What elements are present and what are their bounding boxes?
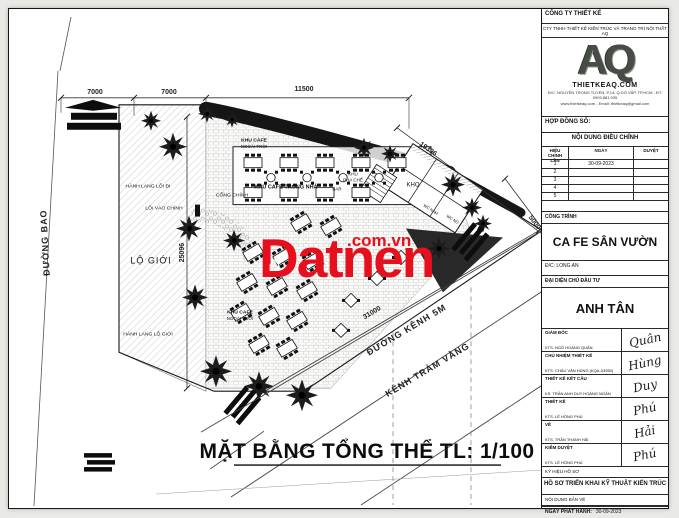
label-indoor-cafe: KHU CAFE TRONG NHÀ [254, 184, 317, 191]
marker-top-left [65, 100, 121, 130]
signer-name: KTS. NGÔ HOÀNG QUÂN [545, 345, 620, 350]
company-logo-box: AQ THIETKEAQ.COM Đ/C: NGUYỄN TRỌNG TUYỂN… [542, 38, 668, 117]
issue-date-row: NGÀY PHÁT HÀNH: 30-09-2023 [542, 507, 668, 518]
label-main-gate: CỔNG CHÍNH [216, 192, 249, 199]
dim-7000-left: 7000 [87, 89, 103, 96]
signer-name: KTS. LÊ HỒNG PHÚ [545, 460, 620, 465]
revision-header: NỘI DUNG ĐIỀU CHỈNH [542, 133, 668, 147]
dossier-label: KÝ HIỆU HỒ SƠ [542, 467, 668, 478]
dim-25096: 25096 [179, 243, 186, 263]
logo-website: THIETKEAQ.COM [542, 82, 668, 89]
signer-role: CHỦ NHIỆM THIẾT KẾ [545, 353, 620, 358]
site-plan-drawing: 7000 7000 11500 19396 5000 25096 31000 Đ… [9, 9, 541, 508]
owner-name: ANH TÂN [542, 288, 668, 329]
sheet-content-label: NỘI DUNG BẢN VẼ [542, 495, 668, 506]
revision-row: 4 [542, 184, 668, 192]
contract-number-row: HỢP ĐỒNG SỐ: [542, 117, 668, 133]
project-label: CÔNG TRÌNH [542, 212, 668, 224]
signer-row-drafter: VẼ KTS. TRẦN THANH HẢI Hải [542, 421, 668, 444]
signer-role: THIẾT KẾ KẾT CẤU [545, 376, 620, 381]
signer-role: GIÁM ĐỐC [545, 330, 620, 335]
label-setback: LỘ GIỚI [130, 254, 171, 265]
scanned-drawing-page: 7000 7000 11500 19396 5000 25096 31000 Đ… [0, 0, 679, 518]
rev-no: 5 [542, 192, 569, 201]
signer-role: THIẾT KẾ [545, 399, 620, 404]
logo-address-1: Đ/C: NGUYỄN TRỌNG TUYỂN, P.14, Q.GÒ VẤP,… [542, 89, 668, 100]
left-road-lines [34, 17, 71, 506]
label-outdoor-cafe-2b: NGOÀI TRỜI [227, 315, 254, 321]
dim-11500: 11500 [294, 86, 313, 93]
logo-address-2: www.thietkeaq.com - Email: thietkeaq@gma… [542, 100, 668, 106]
marker-bottom-left [84, 453, 115, 471]
canal-name: KÊNH TRÀM VÀNG [383, 340, 471, 399]
label-storage: KHO [407, 183, 420, 189]
issue-date-value: 30-09-2023 [596, 509, 622, 518]
signature: Phú [632, 400, 658, 419]
signature: Quân [628, 330, 663, 350]
label-bar-counter-1: KHU [348, 172, 357, 177]
drawing-sheet: 7000 7000 11500 19396 5000 25096 31000 Đ… [8, 8, 669, 509]
signer-name: KS. TRẦN ANH DUY HOÀNG NGÂN [545, 391, 620, 396]
label-outdoor-cafe-1b: NGOÀI TRỜI [241, 143, 268, 149]
project-address: Đ/C: LONG AN [542, 261, 668, 276]
label-outdoor-cafe-1a: KHU CAFE [241, 138, 267, 144]
signer-row-checker: KIỂM DUYỆT KTS. LÊ HỒNG PHÚ Phú [542, 444, 668, 467]
company-header: CÔNG TY THIẾT KẾ [542, 9, 668, 24]
signer-role: KIỂM DUYỆT [545, 445, 620, 450]
signer-name: KTS. TRẦN THANH HẢI [545, 437, 620, 442]
company-subtitle: CTY TNHH THIẾT KẾ KIẾN TRÚC VÀ TRANG TRÍ… [542, 24, 668, 38]
signer-row-designer: THIẾT KẾ KTS. LÊ HỒNG PHÚ Phú [542, 398, 668, 421]
project-name: CA FE SÂN VƯỜN [542, 224, 668, 261]
main-gate-symbol [195, 205, 200, 217]
revision-row: 1 30-09-2023 [542, 160, 668, 168]
signature: Hải [633, 423, 657, 441]
title-block: CÔNG TY THIẾT KẾ CTY TNHH THIẾT KẾ KIẾN … [541, 9, 668, 508]
sheet-title: MẶT BẰNG TỔNG THỂ TL: 1/100 [199, 439, 534, 463]
signer-row-design-lead: CHỦ NHIỆM THIẾT KẾ KTS. CHÂU VĂN HÙNG (K… [542, 352, 668, 375]
signer-name: KTS. LÊ HỒNG PHÚ [545, 414, 620, 419]
signature: Phú [632, 446, 658, 465]
dim-7000-corridor: 7000 [161, 89, 177, 96]
label-bar: BAR [332, 187, 342, 192]
rev-date [569, 192, 634, 201]
signer-row-structure: THIẾT KẾ KẾT CẤU KS. TRẦN ANH DUY HOÀNG … [542, 375, 668, 398]
signature: Hùng [627, 353, 663, 374]
revision-row: 5 [542, 192, 668, 200]
label-outdoor-cafe-2a: KHU CAFE [227, 309, 253, 315]
signature: Duy [632, 377, 659, 396]
label-main-entrance: LỐI VÀO CHÍNH [145, 205, 183, 212]
aq-logo: AQ [542, 38, 668, 82]
owner-label: ĐẠI DIỆN CHỦ ĐẦU TƯ [542, 276, 668, 288]
revision-row: 2 [542, 168, 668, 176]
label-corridor-setback: HÀNH LANG LỘ GIỚI [123, 330, 172, 337]
signer-row-director: GIÁM ĐỐC KTS. NGÔ HOÀNG QUÂN Quân [542, 329, 668, 352]
revision-row: 3 [542, 176, 668, 184]
signer-role: VẼ [545, 422, 620, 427]
rev-approve [634, 192, 668, 201]
label-corridor: HÀNH LANG LỐI ĐI [126, 183, 171, 190]
dossier-name: HỒ SƠ TRIỂN KHAI KỸ THUẬT KIẾN TRÚC [542, 478, 668, 495]
signer-name: KTS. CHÂU VĂN HÙNG (KQA-03950) [545, 368, 620, 373]
revision-table: HIỆU CHỈNH LẦN NGÀY DUYỆT 1 30-09-2023 2… [542, 147, 668, 212]
issue-date-label: NGÀY PHÁT HÀNH: [545, 509, 592, 518]
label-bar-counter-2: PHA CHẾ [343, 177, 363, 183]
